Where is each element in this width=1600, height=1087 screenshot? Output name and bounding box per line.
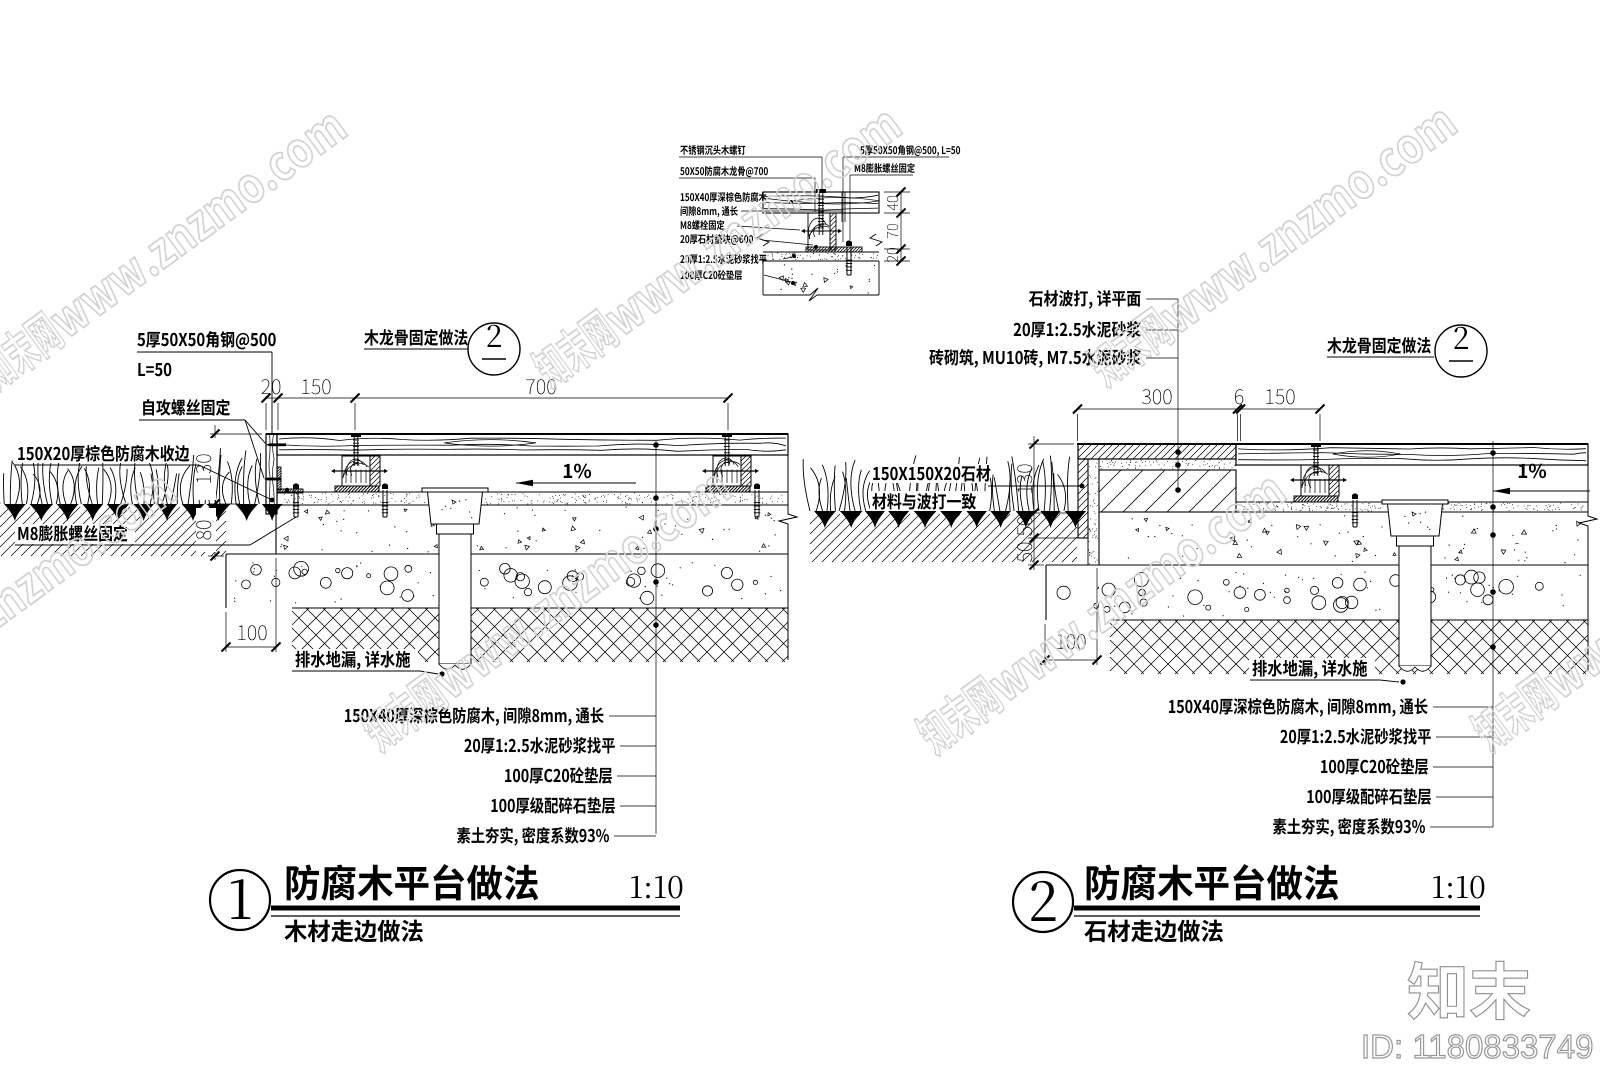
svg-text:ID: 1180833749: ID: 1180833749	[1361, 1028, 1593, 1065]
